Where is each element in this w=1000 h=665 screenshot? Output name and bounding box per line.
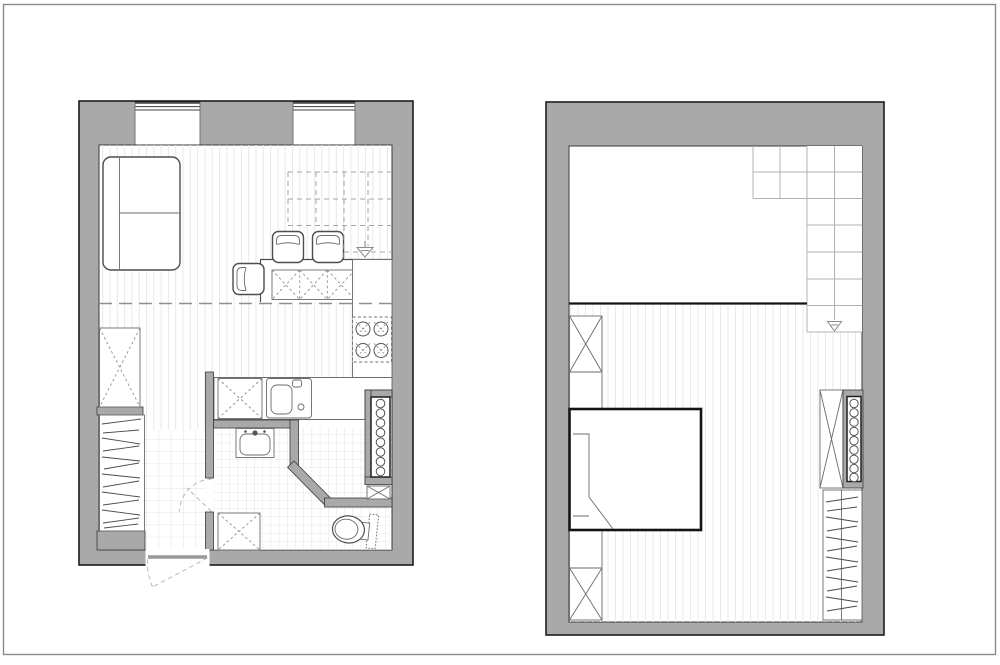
hall-tile-floor: [145, 430, 206, 550]
kitchen-sink: [267, 379, 312, 419]
tall-cabinet-dashed: [100, 328, 141, 407]
wardrobe-hanging-rail: [823, 490, 862, 620]
radiator-niche: [843, 390, 863, 488]
entry-door: [146, 549, 210, 587]
kitchen-island-cabinet: [272, 270, 355, 300]
radiator-sections: [850, 399, 858, 481]
floor-plan-page: [0, 0, 1000, 665]
plan-lower-level: [79, 101, 413, 587]
washing-machine: [218, 513, 260, 550]
dining-chair: [273, 232, 304, 263]
base-cabinet-dashed: [218, 379, 262, 419]
floor-plan-drawing: [0, 0, 1000, 665]
double-bed: [570, 409, 702, 530]
sofa: [103, 157, 180, 270]
washbasin: [236, 429, 274, 458]
radiator-niche: [365, 390, 392, 499]
wardrobe: [820, 390, 843, 488]
wardrobe: [570, 530, 603, 620]
wardrobe-hanging-rail: [100, 415, 145, 531]
dining-chair: [313, 232, 344, 263]
window: [293, 102, 355, 145]
plan-mezzanine: [546, 102, 884, 635]
dining-chair: [233, 264, 264, 295]
window: [135, 102, 200, 145]
duct-box: [367, 486, 390, 499]
wardrobe: [570, 316, 603, 409]
cooktop: [353, 317, 392, 362]
